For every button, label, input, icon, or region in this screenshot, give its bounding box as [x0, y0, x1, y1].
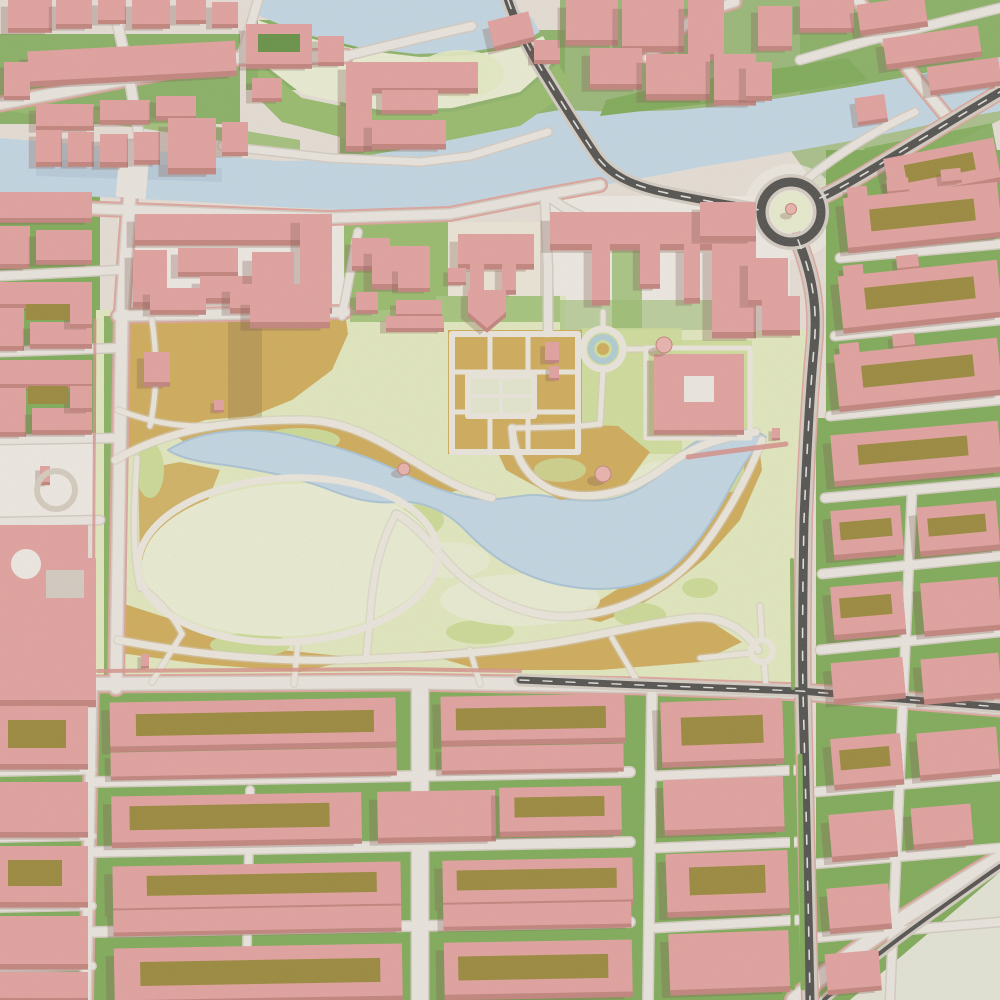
map-canvas[interactable]	[0, 0, 1000, 1000]
map-viewport[interactable]	[0, 0, 1000, 1000]
grain	[0, 0, 1000, 1000]
